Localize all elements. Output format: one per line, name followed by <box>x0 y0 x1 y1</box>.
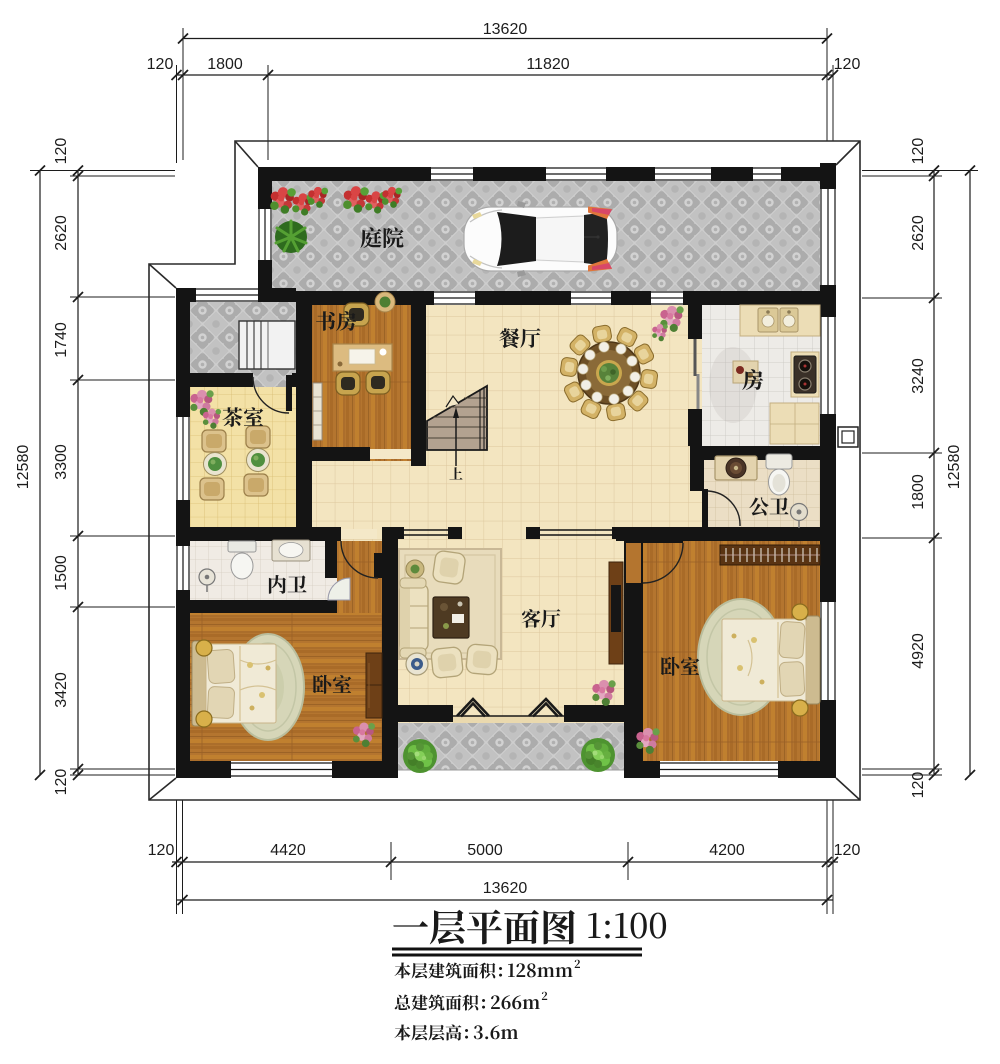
svg-text:1500: 1500 <box>53 555 70 591</box>
svg-text:4200: 4200 <box>709 842 745 859</box>
svg-text:4920: 4920 <box>910 633 927 669</box>
svg-text:120: 120 <box>834 56 861 73</box>
svg-text:1740: 1740 <box>53 322 70 358</box>
svg-text:3420: 3420 <box>53 672 70 708</box>
svg-text:120: 120 <box>148 842 175 859</box>
svg-text:120: 120 <box>910 772 927 799</box>
svg-text:120: 120 <box>147 56 174 73</box>
svg-text:120: 120 <box>53 769 70 796</box>
svg-text:13620: 13620 <box>483 21 528 38</box>
svg-text:5000: 5000 <box>467 842 503 859</box>
svg-text:120: 120 <box>834 842 861 859</box>
svg-text:13620: 13620 <box>483 880 528 897</box>
svg-text:4420: 4420 <box>270 842 306 859</box>
svg-text:120: 120 <box>910 138 927 165</box>
svg-text:12580: 12580 <box>946 445 963 490</box>
svg-text:2620: 2620 <box>53 215 70 251</box>
svg-text:2620: 2620 <box>910 215 927 251</box>
svg-text:3240: 3240 <box>910 358 927 394</box>
svg-text:1800: 1800 <box>910 474 927 510</box>
svg-text:120: 120 <box>53 138 70 165</box>
svg-text:11820: 11820 <box>526 56 569 73</box>
svg-text:3300: 3300 <box>53 444 70 480</box>
svg-text:12580: 12580 <box>15 445 32 490</box>
svg-text:1800: 1800 <box>207 56 243 73</box>
